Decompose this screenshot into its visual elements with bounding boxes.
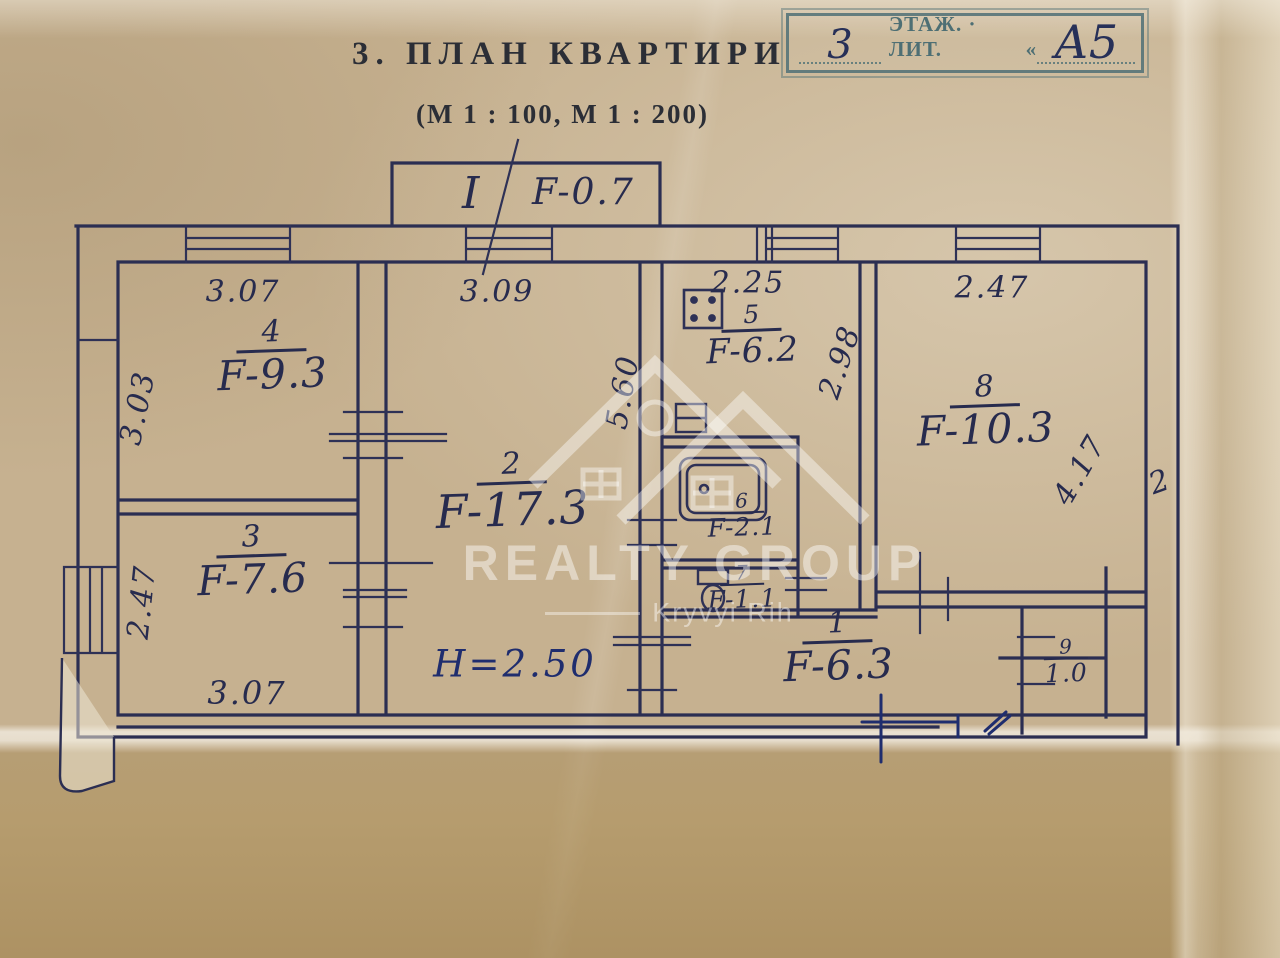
wall-lines [76,163,1178,744]
room-label-6-bathroom: 6 F-2.1 [706,489,777,542]
scanned-floor-plan-page: 3. ПЛАН КВАРТИРИ (М 1 : 100, М 1 : 200) … [0,0,1280,958]
dimension-kitchen-top: 2.25 [711,266,786,301]
ceiling-height-note: H=2.50 [433,643,597,686]
room-label-9-closet: 9 1.0 [1043,636,1089,689]
dimension-room4-top: 3.07 [206,275,281,310]
room-label-5-kitchen: 5 F-6.2 [705,300,800,372]
paper-flap-edge [60,658,114,791]
room-label-8: 8 F-10.3 [915,369,1056,455]
dimension-room8-top: 2.47 [955,271,1030,306]
dimension-room3-bottom: 3.07 [207,674,286,712]
balcony-area-label: F-0.7 [532,172,635,213]
room-label-2: 2 F-17.3 [434,446,591,538]
dimension-room2-top: 3.09 [460,275,535,310]
room-label-7-toilet: 7 F-1.1 [706,561,777,614]
sink-icon [676,404,706,432]
room-label-1-hall: 1 F-6.3 [781,605,894,690]
room-label-3: 3 F-7.6 [195,519,308,604]
room-label-4: 4 F-9.3 [215,314,328,399]
balcony-roman-numeral: I [462,168,479,219]
